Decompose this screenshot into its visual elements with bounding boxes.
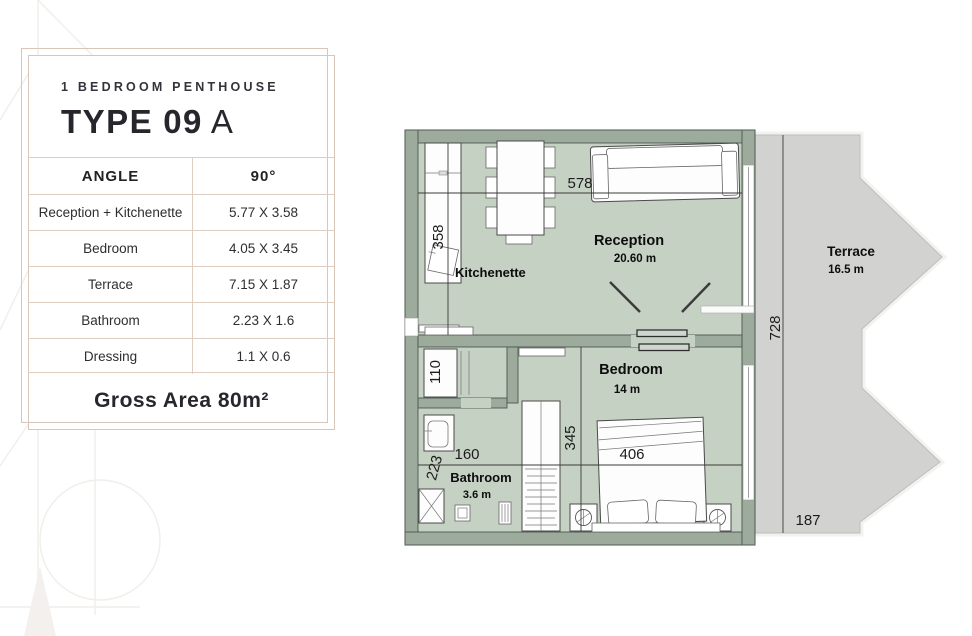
room-label-kitchenette: Kitchenette <box>455 265 526 280</box>
type-label: TYPE <box>61 103 153 140</box>
spec-header-label: ANGLE <box>29 158 193 194</box>
headboard <box>592 523 720 532</box>
spec-header-row: ANGLE 90° <box>29 157 334 194</box>
room-area-bedroom: 14 m <box>614 384 640 396</box>
toilet-icon <box>455 505 470 521</box>
dim-reception-width: 578 <box>567 175 592 192</box>
dim-bathroom-width: 160 <box>454 446 479 463</box>
dim-bedroom-depth: 345 <box>562 425 579 450</box>
type-variant: A <box>211 103 235 140</box>
spec-row-value: 2.23 X 1.6 <box>193 303 334 338</box>
room-area-terrace: 16.5 m <box>828 264 864 276</box>
unit-category: 1 BEDROOM PENTHOUSE <box>61 80 334 94</box>
spec-row-value: 5.77 X 3.58 <box>193 195 334 230</box>
room-label-reception: Reception <box>594 233 664 249</box>
spec-row-label: Dressing <box>29 339 193 374</box>
card-header: 1 BEDROOM PENTHOUSE TYPE09A <box>29 56 334 140</box>
type-number: 09 <box>163 103 203 140</box>
dim-terrace-bottom: 187 <box>795 512 820 529</box>
room-area-bathroom: 3.6 m <box>463 489 491 501</box>
room-area-reception: 20.60 m <box>614 253 656 265</box>
wardrobe <box>522 401 560 531</box>
spec-row-label: Reception + Kitchenette <box>29 195 193 230</box>
gross-area: Gross Area 80m² <box>29 372 334 429</box>
spec-row: Bathroom 2.23 X 1.6 <box>29 302 334 338</box>
spec-row: Reception + Kitchenette 5.77 X 3.58 <box>29 194 334 230</box>
unit-type-title: TYPE09A <box>61 104 334 140</box>
spec-row-value: 1.1 X 0.6 <box>193 339 334 374</box>
room-label-bedroom: Bedroom <box>599 362 663 378</box>
page-root: 1 BEDROOM PENTHOUSE TYPE09A ANGLE 90° Re… <box>0 0 972 636</box>
spec-row: Bedroom 4.05 X 3.45 <box>29 230 334 266</box>
spec-row: Terrace 7.15 X 1.87 <box>29 266 334 302</box>
floor-plan: 578 358 728 110 345 406 160 223 187 Kitc… <box>403 125 958 550</box>
unit-info-card: 1 BEDROOM PENTHOUSE TYPE09A ANGLE 90° Re… <box>28 55 335 430</box>
kitchenette-counter <box>425 143 461 283</box>
spec-row-value: 7.15 X 1.87 <box>193 267 334 302</box>
spec-row-label: Bathroom <box>29 303 193 338</box>
dim-kitchen-depth: 358 <box>430 224 447 249</box>
dim-terrace-height: 728 <box>767 315 784 340</box>
room-label-terrace: Terrace <box>827 244 875 259</box>
pillow <box>655 500 696 525</box>
room-label-bathroom: Bathroom <box>450 470 511 485</box>
spec-row: Dressing 1.1 X 0.6 <box>29 338 334 374</box>
spec-row-label: Terrace <box>29 267 193 302</box>
spec-header-value: 90° <box>193 158 334 194</box>
washbasin-icon <box>424 415 454 451</box>
pillow <box>607 500 649 526</box>
spec-row-value: 4.05 X 3.45 <box>193 231 334 266</box>
spec-row-label: Bedroom <box>29 231 193 266</box>
spec-table: ANGLE 90° Reception + Kitchenette 5.77 X… <box>29 157 334 374</box>
dim-hall-width: 110 <box>427 360 444 384</box>
shower-icon <box>419 489 444 523</box>
dim-bedroom-width: 406 <box>619 446 644 463</box>
radiator-icon <box>499 502 511 524</box>
